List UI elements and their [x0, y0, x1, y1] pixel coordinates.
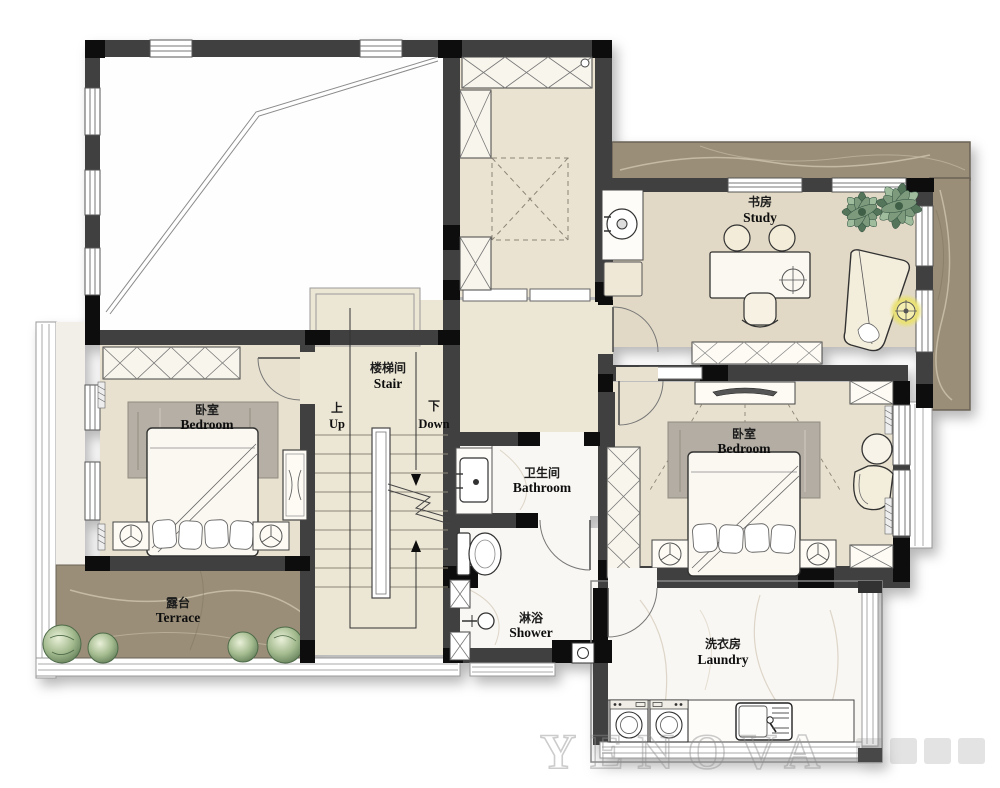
study-floor-lamp: [889, 294, 923, 328]
label-shower-zh: 淋浴: [519, 610, 544, 625]
bedroomR-nightstand-1: [652, 540, 688, 568]
bedroomR-curtain-2: [885, 498, 892, 534]
study-desk: [710, 252, 810, 298]
label-up-zh: 上: [331, 400, 343, 415]
label-shower-en: Shower: [509, 625, 553, 640]
door-sill-closet-1: [463, 289, 527, 301]
label-bedroomR-zh: 卧室: [732, 426, 756, 441]
label-terrace-en: Terrace: [156, 610, 200, 625]
label-bathroom-en: Bathroom: [513, 480, 572, 495]
label-stair-zh: 楼梯间: [370, 360, 406, 375]
bedroomR-wardrobe: [607, 447, 640, 578]
window-left-2: [85, 170, 100, 215]
window-top-2: [360, 40, 402, 57]
bedroomR-bed: [688, 452, 800, 576]
window-shower-sill: [470, 663, 555, 676]
stair-railing: [372, 428, 390, 598]
window-top-1: [150, 40, 192, 57]
watermark-cjk-blocks: [856, 738, 985, 764]
label-laundry-en: Laundry: [697, 652, 748, 667]
label-bedroomL-zh: 卧室: [195, 402, 219, 417]
study-chair: [742, 293, 778, 327]
door-opening-bathroom: [540, 432, 584, 446]
window-bedroomR-1: [893, 405, 910, 465]
closet-wardrobe-top: [462, 57, 592, 88]
label-bathroom-zh: 卫生间: [524, 465, 560, 480]
bedroomR-round-table: [862, 434, 892, 464]
closet-wardrobe-left-1: [460, 90, 491, 158]
label-terrace-zh: 露台: [166, 595, 190, 610]
bedroomR-corner-cabinet-top: [850, 381, 893, 404]
label-up-en: Up: [329, 417, 345, 431]
label-bedroomL-en: Bedroom: [181, 417, 235, 432]
bedroomL-curtain-1: [98, 382, 105, 408]
bedroomL-curtain-2: [98, 524, 105, 550]
bedroomL-bench: [283, 450, 307, 520]
bedroomL-nightstand-2: [253, 522, 289, 550]
study-window-seat: [692, 342, 822, 364]
watermark: YENOVA: [540, 723, 985, 779]
closet-wardrobe-left-2: [460, 237, 491, 290]
door-sill-closet-2: [530, 289, 590, 301]
bedroomR-curtain-1: [885, 406, 892, 434]
label-down-zh: 下: [428, 399, 440, 413]
label-bedroomR-en: Bedroom: [718, 441, 772, 456]
label-laundry-zh: 洗衣房: [705, 636, 741, 651]
window-bedroomL-2: [85, 462, 100, 520]
watermark-text: YENOVA: [540, 723, 834, 779]
bedroomL-bed: [147, 428, 258, 556]
study-side-table: [604, 262, 642, 296]
window-study-right-1: [916, 206, 933, 266]
shower-niche-1: [450, 580, 470, 608]
window-left-3: [85, 248, 100, 295]
study-plant-1: [842, 192, 882, 232]
right-railing: [908, 402, 932, 548]
shower-niche-2: [450, 632, 470, 660]
floor-drain: [572, 643, 594, 663]
label-down-en: Down: [418, 417, 449, 431]
study-stool-1: [724, 225, 750, 251]
bedroomR-corner-cabinet-bottom: [850, 545, 893, 568]
window-study-top-1: [728, 178, 802, 192]
floor-plan: 书房 Study 卧室 Bedroom 卧室 Bedroom 楼梯间 Stair…: [0, 0, 1000, 788]
study-stool-2: [769, 225, 795, 251]
label-study-zh: 书房: [748, 194, 772, 209]
label-stair-en: Stair: [374, 376, 403, 391]
label-study-en: Study: [743, 210, 777, 225]
bedroomL-nightstand-1: [113, 522, 149, 550]
bathroom-sink: [456, 446, 492, 514]
study-vanity: [602, 190, 643, 260]
window-left-1: [85, 88, 100, 135]
bedroomL-wardrobe: [103, 347, 240, 379]
window-bedroomR-2: [893, 470, 910, 536]
bedroomR-nightstand-2: [800, 540, 836, 568]
toilet: [457, 533, 501, 575]
